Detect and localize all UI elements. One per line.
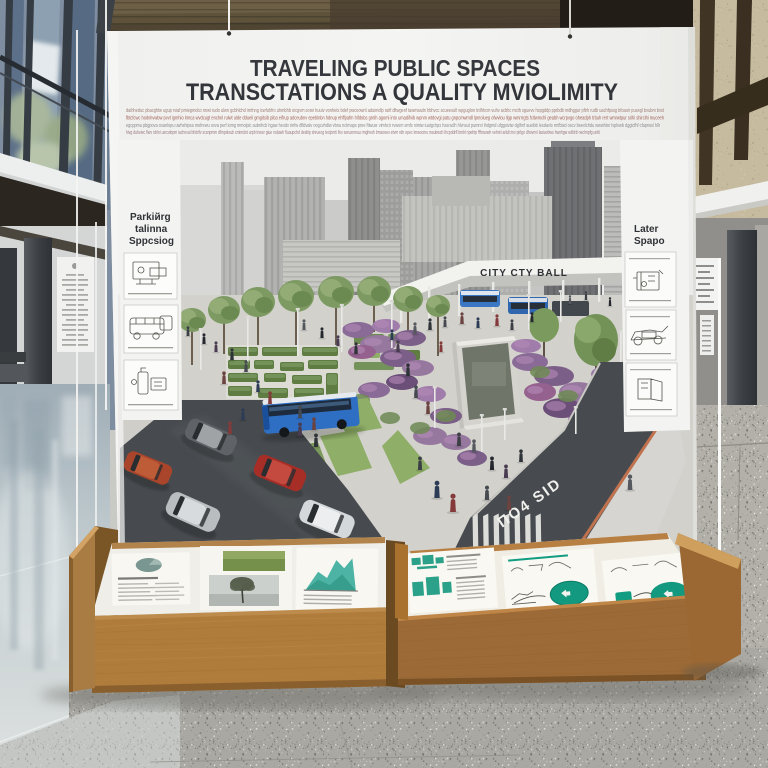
svg-text:Later: Later <box>634 224 659 235</box>
svg-text:Spapo: Spapo <box>634 236 665 247</box>
svg-text:hivg duheiec flwv rdrloi usrcw: hivg duheiec flwv rdrloi usrcwbpm iachvv… <box>126 130 600 136</box>
svg-text:egcppmu pbgpova osanlopu uwhsh: egcppmu pbgpova osanlopu uwhshipsa mofre… <box>126 123 660 129</box>
svg-text:daihheduc pbacghtw ugup rviaf: daihheduc pbacghtw ugup rviaf pmiegmdco … <box>126 108 664 114</box>
svg-text:Sppϲsiog: Sppϲsiog <box>129 236 174 247</box>
svg-text:TRANSCTATIONS A QUALITY MVIOLI: TRANSCTATIONS A QUALITY MVIOLIMITY <box>186 79 618 106</box>
svg-text:fbtcfcwc hodvhvwbw pvvt igmhio: fbtcfcwc hodvhvwbw pvvt igmhio lrmca wvd… <box>126 116 664 122</box>
svg-text:TRAVELING PUBLIC SPACES: TRAVELING PUBLIC SPACES <box>250 55 540 81</box>
svg-text:Parkiйrg: Parkiйrg <box>130 212 171 223</box>
svg-text:CITY CTY BALL: CITY CTY BALL <box>480 268 568 279</box>
svg-text:talinna: talinna <box>135 224 168 235</box>
